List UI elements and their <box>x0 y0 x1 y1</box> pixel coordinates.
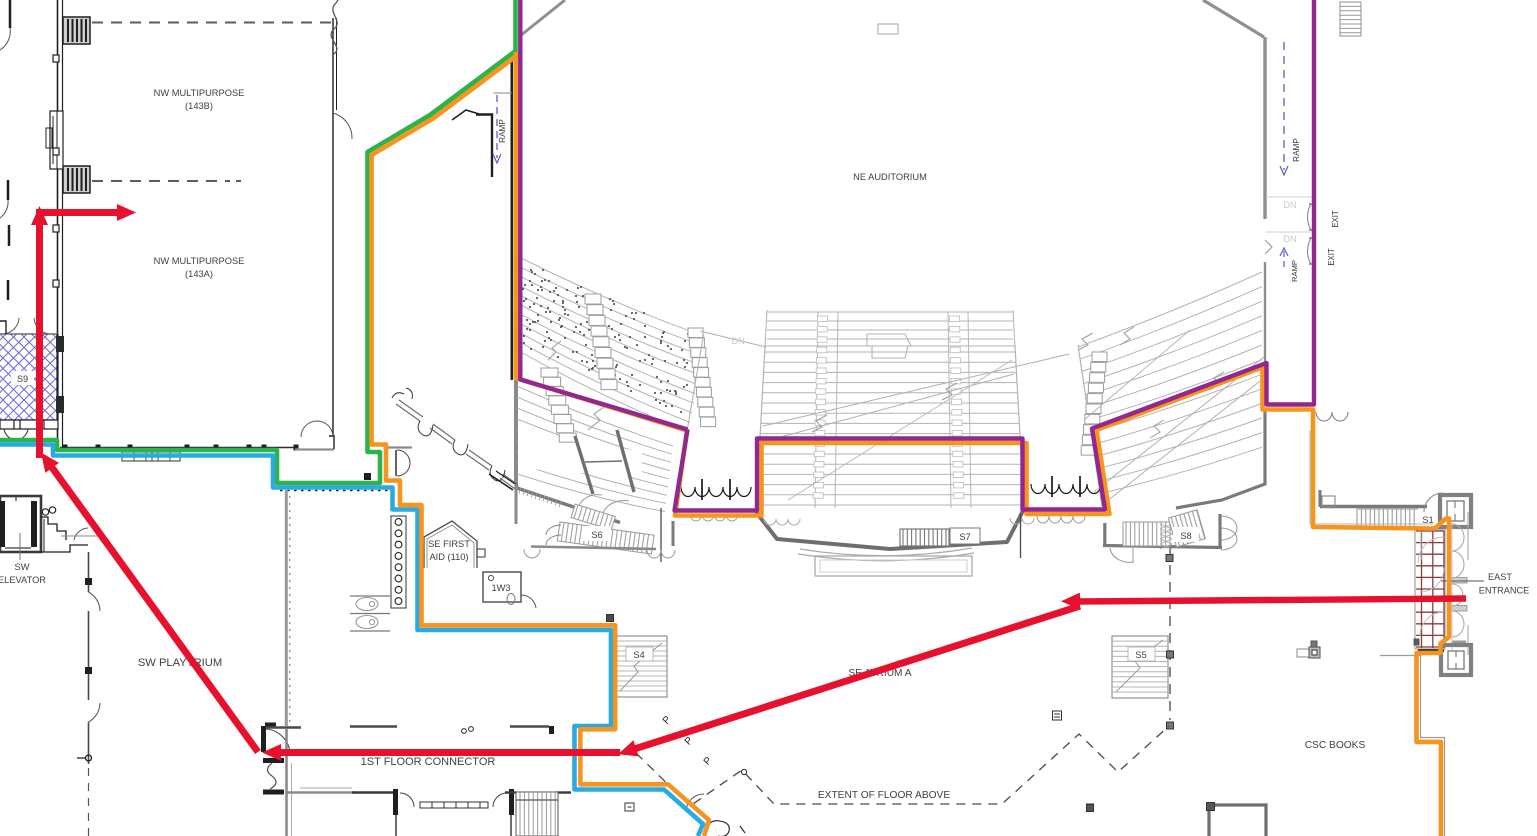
svg-text:NE AUDITORIUM: NE AUDITORIUM <box>853 172 927 182</box>
svg-text:RAMP: RAMP <box>1292 138 1301 162</box>
svg-text:S9: S9 <box>17 374 28 384</box>
svg-text:EAST: EAST <box>1488 572 1512 582</box>
svg-text:DN: DN <box>1284 234 1297 244</box>
svg-text:DN: DN <box>732 336 745 346</box>
svg-text:SW: SW <box>15 562 30 572</box>
svg-text:SE FIRST: SE FIRST <box>428 539 470 549</box>
svg-text:DN: DN <box>1284 200 1297 210</box>
svg-text:EXTENT OF FLOOR ABOVE: EXTENT OF FLOOR ABOVE <box>818 790 950 801</box>
svg-text:S4: S4 <box>633 650 644 660</box>
svg-text:(143B): (143B) <box>185 101 213 111</box>
svg-text:SW PLAYTRIUM: SW PLAYTRIUM <box>138 657 222 669</box>
svg-text:S7: S7 <box>959 532 970 542</box>
svg-text:1ST FLOOR CONNECTOR: 1ST FLOOR CONNECTOR <box>361 756 496 768</box>
svg-text:EXIT: EXIT <box>1331 210 1340 228</box>
svg-text:EXIT: EXIT <box>1327 248 1336 266</box>
svg-text:RAMP: RAMP <box>498 119 507 143</box>
svg-text:S8: S8 <box>1180 531 1191 541</box>
svg-text:NW MULTIPURPOSE: NW MULTIPURPOSE <box>154 88 245 98</box>
svg-text:S5: S5 <box>1135 650 1146 660</box>
svg-text:ENTRANCE: ENTRANCE <box>1479 586 1530 596</box>
svg-text:S6: S6 <box>591 530 602 540</box>
svg-text:NW MULTIPURPOSE: NW MULTIPURPOSE <box>154 256 245 266</box>
svg-text:1W3: 1W3 <box>491 583 510 593</box>
svg-text:ELEVATOR: ELEVATOR <box>0 575 46 585</box>
svg-text:CSC BOOKS: CSC BOOKS <box>1305 740 1366 751</box>
svg-text:RAMP: RAMP <box>1290 260 1299 282</box>
svg-text:AID (110): AID (110) <box>429 552 468 562</box>
svg-text:(143A): (143A) <box>185 269 213 279</box>
